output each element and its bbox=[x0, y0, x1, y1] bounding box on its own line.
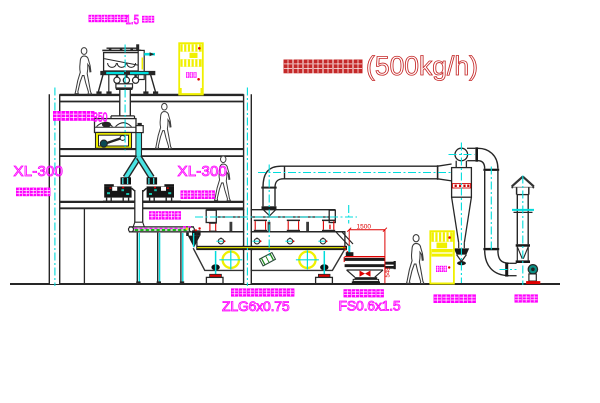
svg-text:FS0.6x1.5: FS0.6x1.5 bbox=[339, 298, 401, 314]
svg-text:XL-300: XL-300 bbox=[178, 163, 228, 180]
svg-text:1500: 1500 bbox=[357, 224, 372, 231]
svg-text:350: 350 bbox=[93, 110, 108, 125]
svg-text:548: 548 bbox=[386, 267, 392, 278]
svg-text:ZLG6x0.75: ZLG6x0.75 bbox=[222, 298, 290, 314]
svg-text:XL-300: XL-300 bbox=[14, 163, 64, 180]
svg-text:(500kg/h): (500kg/h) bbox=[366, 51, 478, 81]
svg-text:1.5: 1.5 bbox=[126, 12, 140, 27]
